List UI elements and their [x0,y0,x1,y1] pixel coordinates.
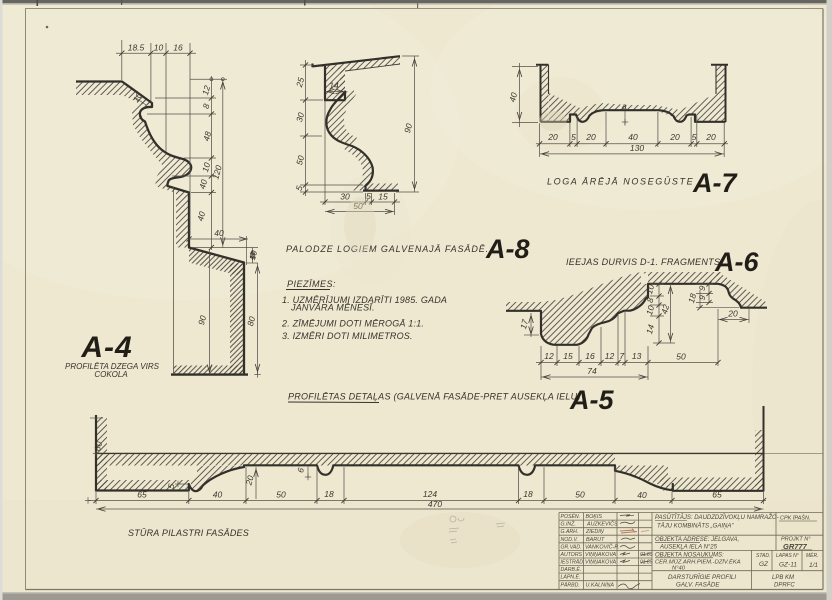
svg-text:LOGA ĀRĒJĀ NOSEGŪSTE: LOGA ĀRĒJĀ NOSEGŪSTE [547,177,694,187]
svg-text:LPB KM: LPB KM [772,575,794,581]
svg-text:ZIEDIŅ: ZIEDIŅ [585,529,604,535]
svg-text:PĀRBD.: PĀRBD. [561,581,580,588]
svg-text:A-8: A-8 [485,234,530,264]
svg-text:40: 40 [628,132,638,142]
svg-text:14: 14 [329,81,339,91]
svg-text:74: 74 [587,366,597,376]
svg-text:G.INŽ.: G.INŽ. [561,520,576,528]
svg-text:PALODZE LOGIEM GALVENAJĀ FASĀD: PALODZE LOGIEM GALVENAJĀ FASĀDĒ. [286,244,489,254]
svg-text:MĒR.: MĒR. [806,552,819,559]
svg-text:18: 18 [523,489,533,499]
svg-text:470: 470 [428,499,442,509]
svg-text:IESTRĀD.: IESTRĀD. [561,559,585,566]
svg-text:STŪRA PILASTRI FASĀDES: STŪRA PILASTRI FASĀDES [128,528,249,538]
svg-text:50: 50 [676,352,686,362]
svg-text:65: 65 [137,490,147,500]
svg-text:65: 65 [712,490,722,500]
svg-text:TĀJU KOMBINĀTS „GAIŅA”: TĀJU KOMBINĀTS „GAIŅA” [657,523,734,530]
svg-text:AUSEKĻA IELA N°25: AUSEKĻA IELA N°25 [659,545,718,551]
svg-text:CPK ĪPAŠN.: CPK ĪPAŠN. [780,515,810,522]
svg-text:PASŪTĪTĀJS: DAUDZDZĪVOKĻU NAMR: PASŪTĪTĀJS: DAUDZDZĪVOKĻU NAMRAŽO- [655,513,779,521]
svg-text:LAPN.Ē.: LAPN.Ē. [561,574,581,581]
svg-text:16: 16 [585,351,595,361]
svg-text:DARSTURĪGIE PROFILI: DARSTURĪGIE PROFILI [668,574,736,581]
svg-text:N°40: N°40 [672,566,686,572]
svg-text:JANVĀRA MĒNESĪ.: JANVĀRA MĒNESĪ. [290,303,375,313]
svg-text:5: 5 [692,132,697,142]
svg-text:a: a [622,101,627,111]
svg-text:10: 10 [154,43,164,53]
svg-text:01.85: 01.85 [640,560,653,566]
svg-text:PIEZĪMES:: PIEZĪMES: [287,279,336,289]
svg-text:POSĒN.: POSĒN. [561,513,581,520]
svg-text:130: 130 [630,143,644,153]
svg-text:12: 12 [544,351,554,361]
svg-text:20: 20 [727,309,738,319]
svg-text:A-6: A-6 [714,247,759,277]
svg-text:124: 124 [423,489,437,499]
svg-text:G.ARH.: G.ARH. [561,529,579,535]
svg-text:VIŅŅAKOVA: VIŅŅAKOVA [585,552,617,558]
svg-text:01.85: 01.85 [640,552,653,558]
svg-text:18: 18 [324,489,334,499]
svg-text:20: 20 [547,132,558,142]
svg-text:50: 50 [276,490,286,500]
svg-text:GZ: GZ [759,561,769,568]
svg-text:AUTORS: AUTORS [560,552,583,558]
svg-text:3. IZMĒRI DOTI MILIMETROS.: 3. IZMĒRI DOTI MILIMETROS. [282,331,413,341]
svg-text:15: 15 [378,192,388,202]
svg-text:15: 15 [563,351,573,361]
svg-text:18.5: 18.5 [128,43,145,53]
svg-text:BOĶIS: BOĶIS [586,514,603,520]
svg-text:16: 16 [173,43,183,53]
svg-text:BARUT: BARUT [586,537,605,543]
svg-text:40: 40 [213,490,223,500]
svg-text:1/1: 1/1 [809,562,818,569]
svg-text:A-7: A-7 [692,168,738,198]
svg-text:DPRFC: DPRFC [774,583,795,589]
svg-text:NOD.V.: NOD.V. [561,537,578,543]
svg-text:U.KALNIŅA: U.KALNIŅA [586,582,615,588]
svg-text:7: 7 [619,351,624,361]
svg-text:20: 20 [669,132,680,142]
svg-text:50: 50 [575,490,585,500]
svg-text:30: 30 [340,192,350,202]
svg-text:5: 5 [366,191,371,201]
svg-text:AUZKEVIČS: AUZKEVIČS [586,521,618,528]
svg-text:IEEJAS DURVIS D-1. FRAGMENTS: IEEJAS DURVIS D-1. FRAGMENTS [566,257,720,267]
svg-text:VIŅŅAKOVA: VIŅŅAKOVA [585,560,617,566]
svg-text:VANKOVIČ-R.: VANKOVIČ-R. [585,543,620,550]
svg-text:GR.VAD.: GR.VAD. [561,544,582,550]
svg-text:12: 12 [605,351,615,361]
svg-text:CER.MŪZ.ARH.PIEM.-DZĪV.ĒKA: CER.MŪZ.ARH.PIEM.-DZĪV.ĒKA [655,559,741,566]
svg-text:A-5: A-5 [569,385,614,415]
svg-text:LAPAS N°: LAPAS N° [776,553,799,559]
svg-text:PROFILĒTAS DETAĻAS (GALVENĀ FA: PROFILĒTAS DETAĻAS (GALVENĀ FASĀDE-PRET … [288,392,581,402]
svg-text:STAD.: STAD. [756,553,770,559]
svg-text:13: 13 [632,351,642,361]
svg-text:COKOLA: COKOLA [94,370,127,379]
svg-text:DARB.Ē.: DARB.Ē. [561,566,582,573]
svg-text:A-4: A-4 [80,331,132,364]
svg-text:40: 40 [637,490,647,500]
svg-text:5: 5 [571,132,576,142]
svg-text:20: 20 [705,132,716,142]
svg-text:40: 40 [214,228,224,238]
svg-text:GALV. FASĀDE: GALV. FASĀDE [676,582,720,589]
svg-text:GZ-11: GZ-11 [779,562,797,569]
svg-text:2. ZĪMĒJUMI DOTI MĒROGĀ 1:1.: 2. ZĪMĒJUMI DOTI MĒROGĀ 1:1. [281,319,424,329]
svg-text:20: 20 [585,132,596,142]
